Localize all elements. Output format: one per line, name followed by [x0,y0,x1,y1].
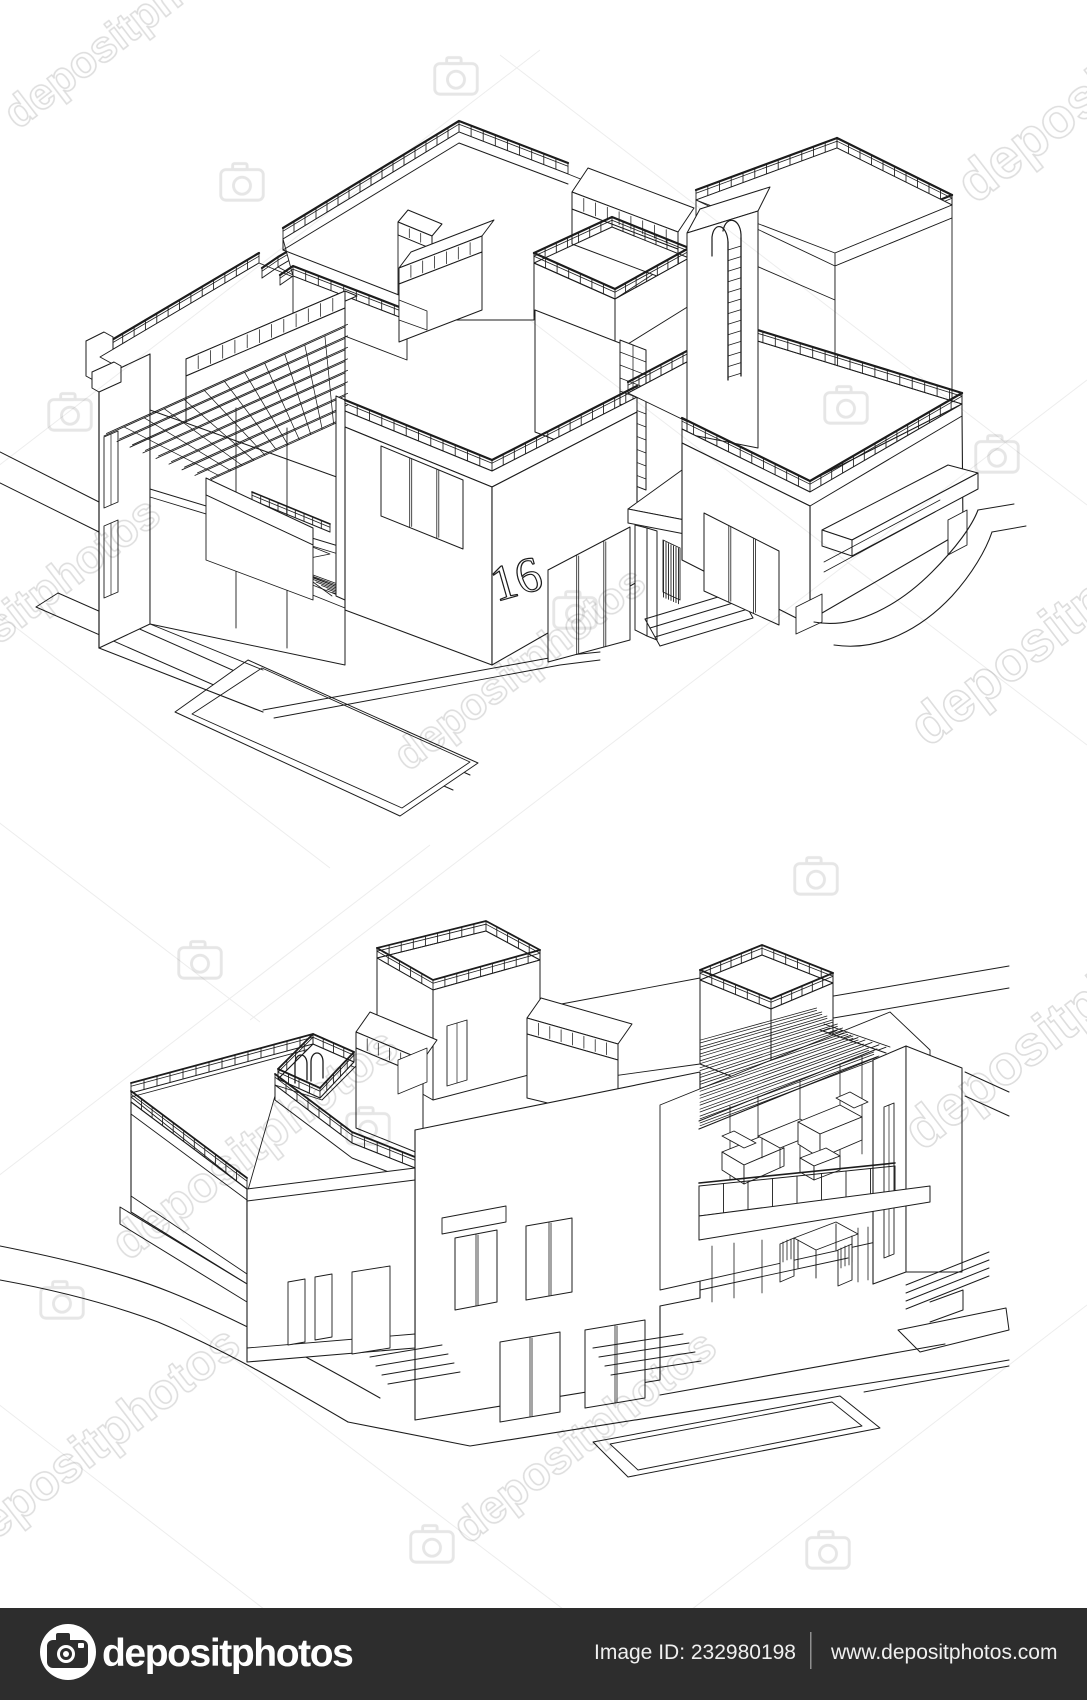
svg-text:depositphotos: depositphotos [102,1632,353,1675]
svg-text:Image ID: 232980198: Image ID: 232980198 [594,1641,796,1664]
svg-text:www.depositphotos.com: www.depositphotos.com [830,1641,1057,1664]
